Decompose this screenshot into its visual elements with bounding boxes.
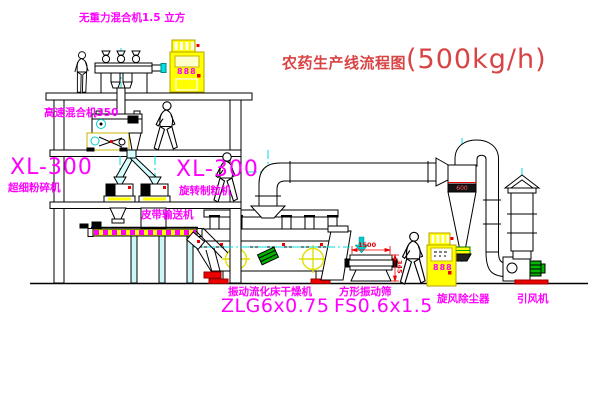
control-cabinet-2 (427, 233, 456, 286)
cyclone-separator (448, 140, 511, 277)
label-cyclone: 旋风除尘器 (437, 294, 490, 305)
worker-figure-floor2 (154, 102, 177, 150)
induced-draft-fan (503, 257, 548, 284)
control-cabinet-1 (170, 40, 204, 92)
label-belt-conveyor: 皮带输送机 (141, 210, 194, 221)
label-pulverizer-model: XL-300 (10, 157, 93, 179)
drawing-title: 农药生产线流程图 (500kg/h) (282, 44, 547, 75)
belt-conveyor (88, 228, 202, 284)
cabinet-1-display: 888 (177, 68, 197, 76)
label-granulator-name: 旋转制粒机 (179, 186, 232, 197)
label-fluid-bed-dryer-model: ZLG6x0.75 (221, 297, 329, 316)
label-high-speed-mixer: 高速混合机350 (44, 108, 118, 119)
sieve-height-dimension: 345 (396, 260, 403, 274)
title-text: 农药生产线流程图 (282, 52, 406, 73)
gravity-mixer (95, 51, 166, 114)
title-capacity: (500kg/h) (406, 44, 547, 75)
granulator-right (139, 177, 170, 202)
label-square-sieve-model: FS0.6x1.5 (334, 297, 433, 316)
drawing-canvas: 农药生产线流程图 (500kg/h) 无重力混合机1.5 立方 高速混合机350… (0, 0, 600, 403)
worker-figure-roof (75, 52, 88, 92)
worker-figure-ground (400, 232, 425, 284)
exhaust-duct (251, 158, 450, 218)
label-gravity-mixer: 无重力混合机1.5 立方 (79, 13, 185, 24)
label-pulverizer-name: 超细粉碎机 (8, 183, 61, 194)
label-induced-draft-fan: 引风机 (517, 294, 549, 305)
cyclone-band-marking: 600 (450, 186, 474, 192)
granulator-left (104, 177, 135, 202)
label-granulator-model: XL-300 (176, 159, 259, 181)
exhaust-stack (505, 175, 539, 259)
sieve-length-dimension: 1500 (358, 242, 376, 249)
cabinet-2-display: 888 (433, 264, 453, 272)
